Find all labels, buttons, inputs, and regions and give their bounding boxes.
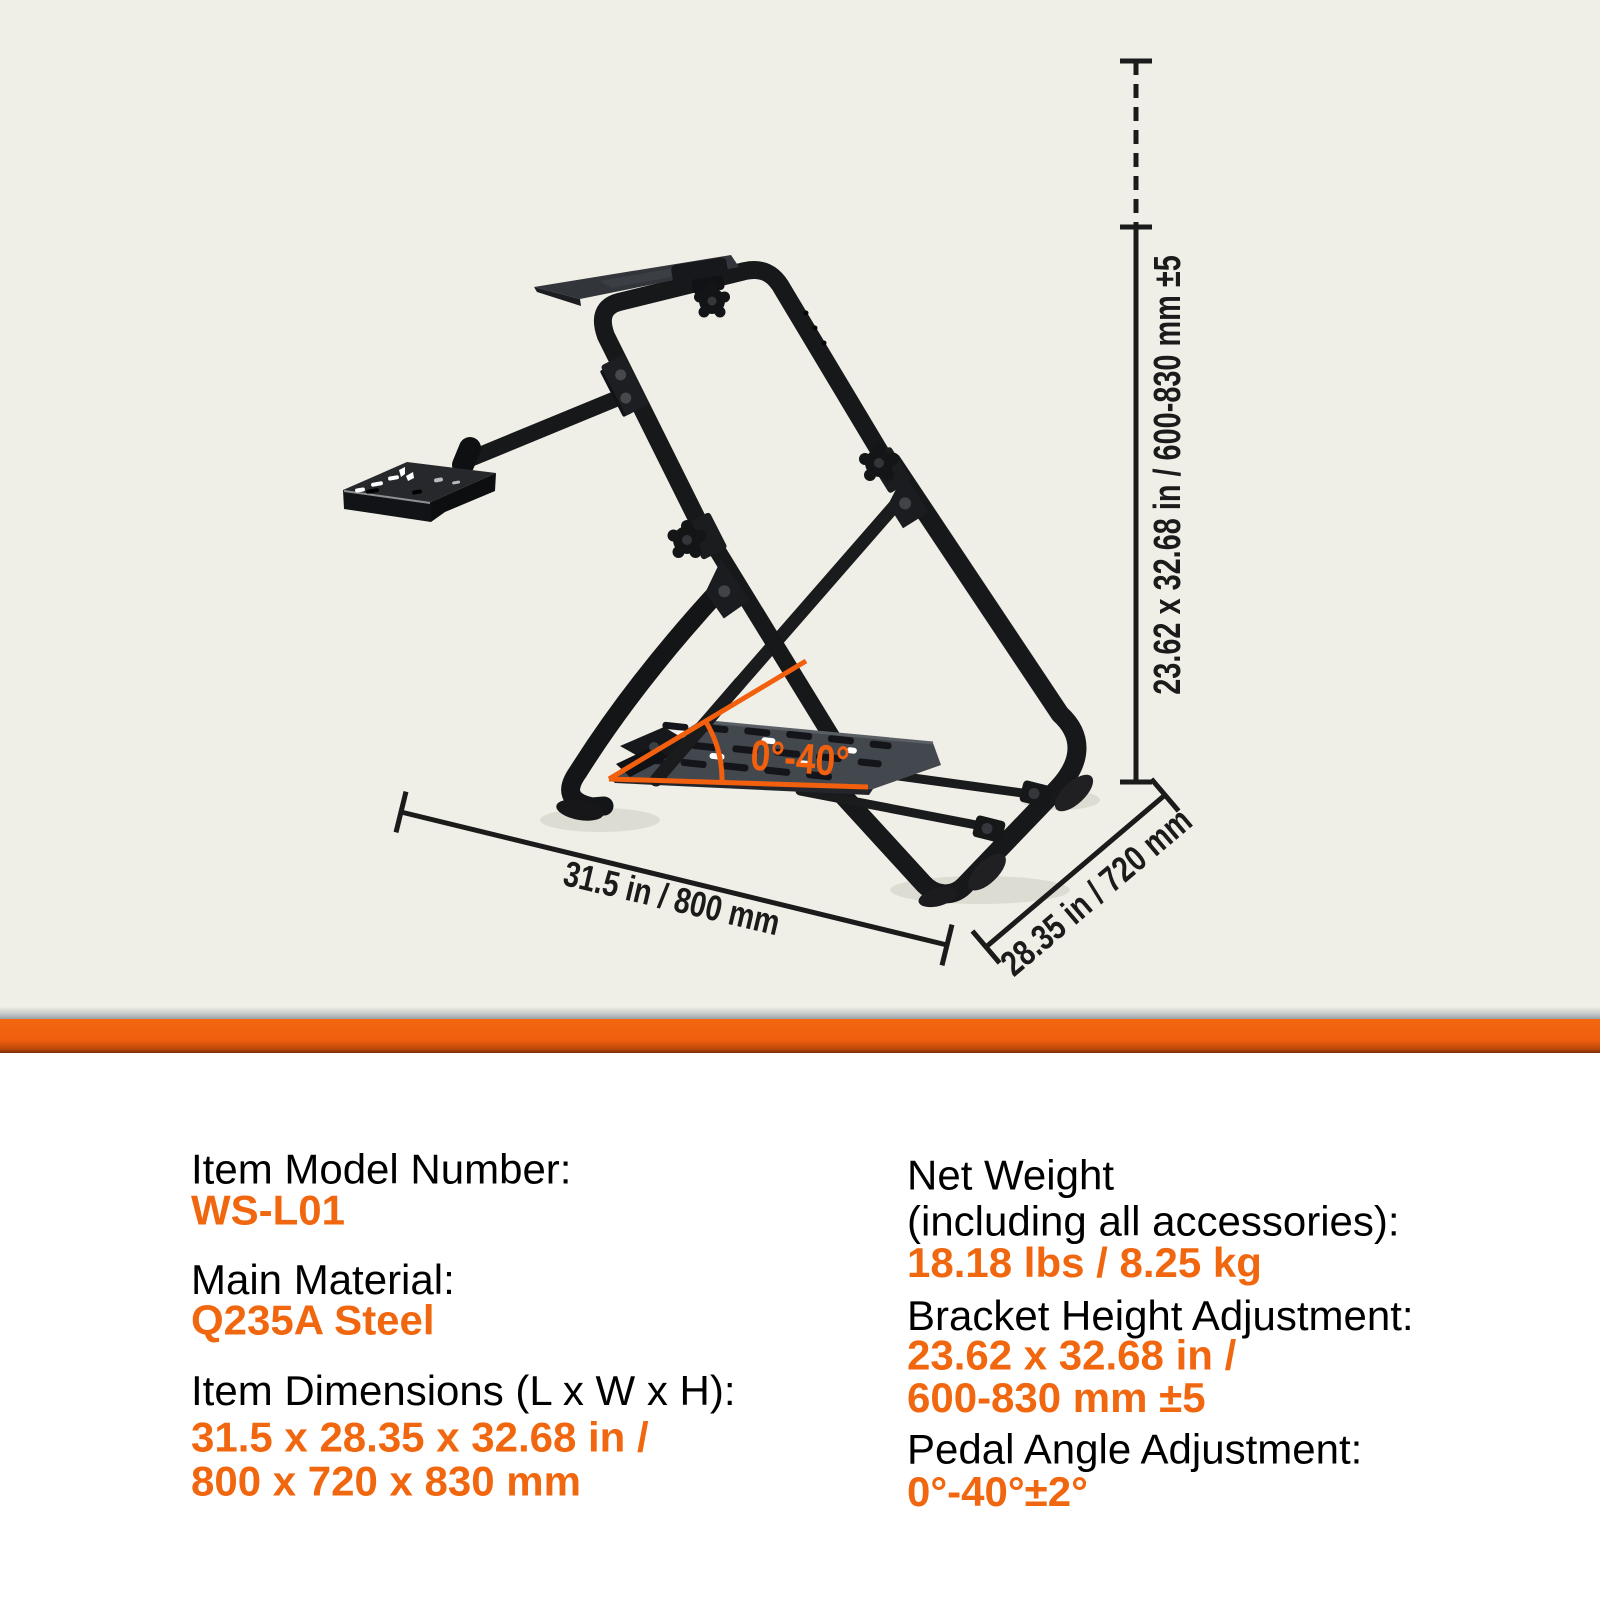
svg-text:Q235A Steel: Q235A Steel <box>191 1297 435 1344</box>
svg-text:0°-40°±2°: 0°-40°±2° <box>907 1468 1088 1515</box>
svg-text:23.62 x 32.68 in / 600-830 mm: 23.62 x 32.68 in / 600-830 mm ±5 <box>1146 255 1189 695</box>
svg-text:23.62 x 32.68 in /: 23.62 x 32.68 in / <box>907 1332 1237 1379</box>
svg-text:Item Model Number:: Item Model Number: <box>191 1146 571 1193</box>
svg-text:Pedal Angle Adjustment:: Pedal Angle Adjustment: <box>907 1426 1362 1473</box>
svg-text:18.18 lbs / 8.25 kg: 18.18 lbs / 8.25 kg <box>907 1239 1262 1286</box>
svg-text:Item Dimensions (L x W x H):: Item Dimensions (L x W x H): <box>191 1367 736 1414</box>
svg-text:(including all accessories):: (including all accessories): <box>907 1198 1400 1245</box>
svg-text:600-830 mm ±5: 600-830 mm ±5 <box>907 1374 1206 1421</box>
svg-text:31.5 x 28.35 x 32.68 in /: 31.5 x 28.35 x 32.68 in / <box>191 1414 649 1461</box>
svg-text:800 x 720 x 830 mm: 800 x 720 x 830 mm <box>191 1458 581 1505</box>
svg-text:Net Weight: Net Weight <box>907 1152 1114 1199</box>
svg-text:0°-40°: 0°-40° <box>749 731 851 786</box>
svg-text:WS-L01: WS-L01 <box>191 1187 345 1234</box>
